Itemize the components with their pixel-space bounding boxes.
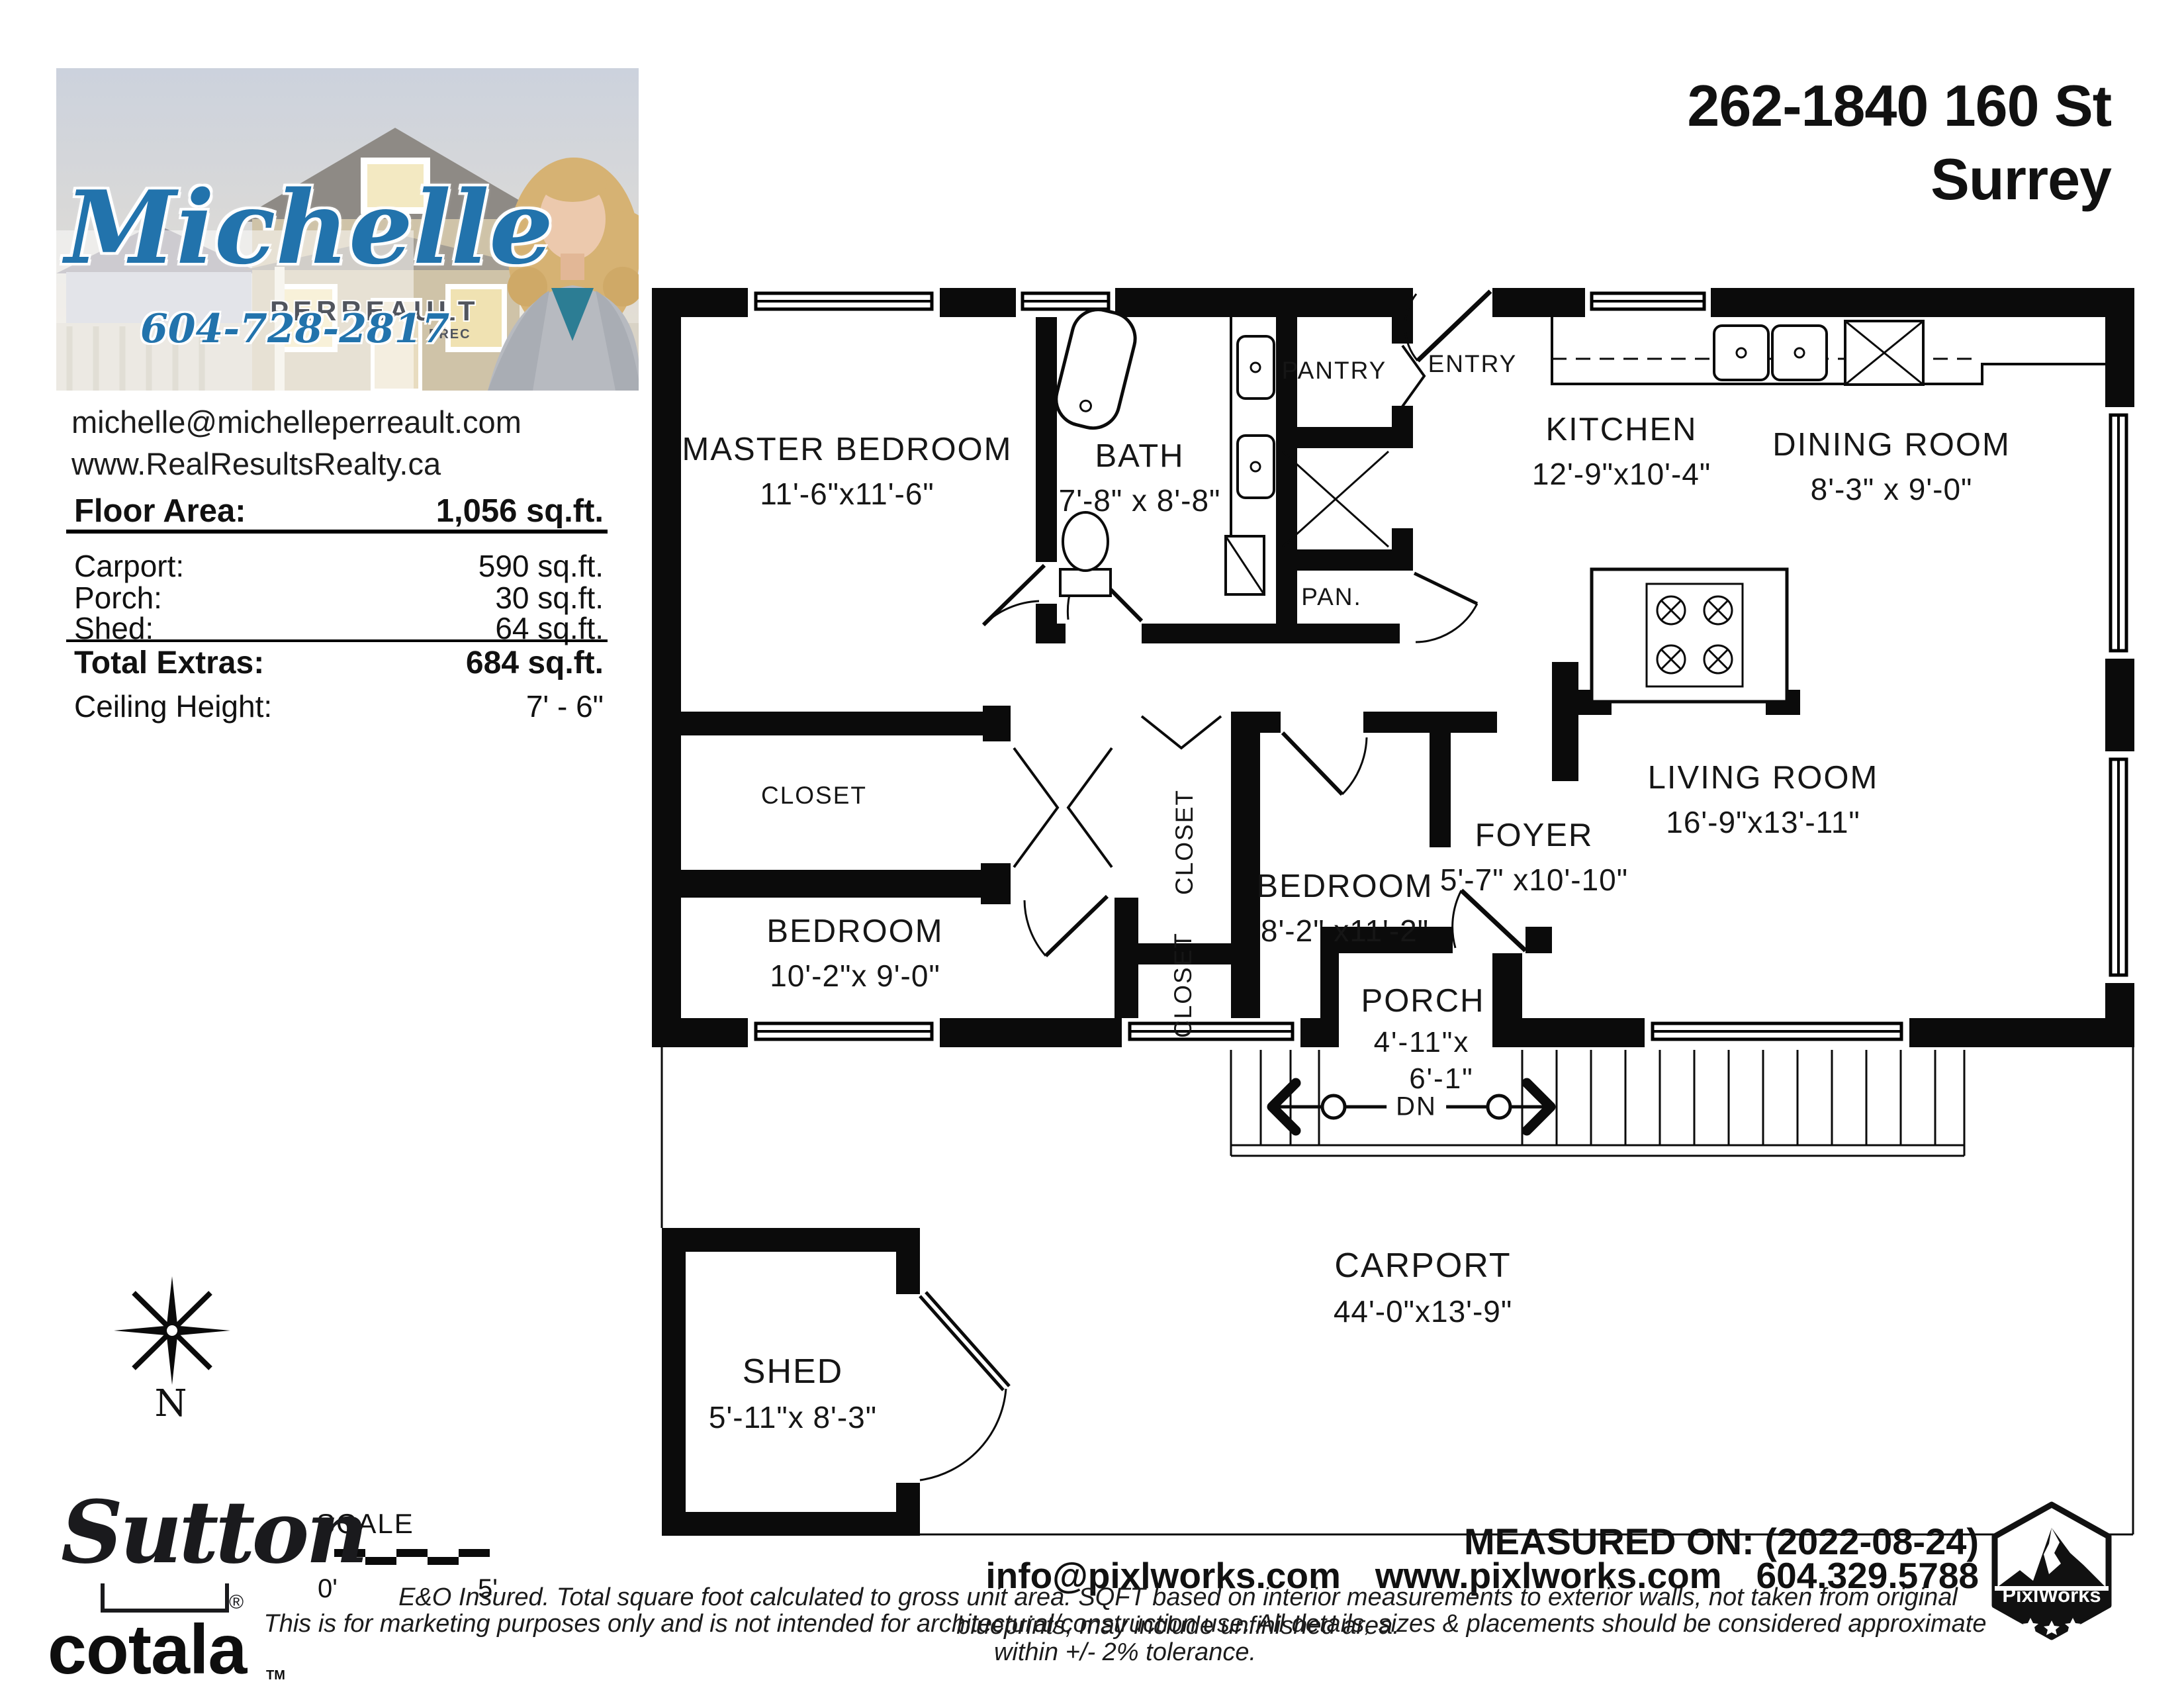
room-label-living-room: LIVING ROOM 16'-9"x13'-11" (1648, 759, 1879, 840)
total-extras-value: 684 sq.ft. (466, 645, 604, 681)
room-label-bedroom2: BEDROOM 8'-2" x11'-2" (1256, 868, 1433, 949)
disclaimer-line2: This is for marketing purposes only and … (251, 1610, 1999, 1667)
room-label-pantry: PANTRY (1282, 357, 1387, 385)
room-label-foyer: FOYER 5'-7" x10'-10" (1440, 817, 1628, 898)
room-label-closet: CLOSET (761, 782, 867, 810)
room-label-pan: PAN. (1301, 583, 1362, 611)
total-extras-label: Total Extras: (74, 645, 264, 681)
compass-north-label: N (155, 1382, 187, 1425)
compass-rose-icon (99, 1274, 245, 1387)
floor-plan: MASTER BEDROOM 11'-6"x11'-6" BATH 7'-8" … (649, 285, 2138, 1575)
ceiling-height-label: Ceiling Height: (74, 688, 272, 724)
ceiling-height-row: Ceiling Height: 7' - 6" (74, 688, 604, 724)
table-divider (66, 639, 608, 642)
sutton-logo: Sutton (61, 1481, 365, 1583)
room-label-carport: CARPORT 44'-0"x13'-9" (1334, 1246, 1512, 1329)
room-label-master-bedroom: MASTER BEDROOM 11'-6"x11'-6" (682, 431, 1013, 512)
address-line1: 262-1840 160 St (1509, 74, 2111, 138)
address-line2: Surrey (1509, 148, 2111, 212)
floor-area-value: 1,056 sq.ft. (436, 493, 604, 530)
sutton-logo-bracket (101, 1583, 229, 1613)
room-label-kitchen: KITCHEN 12'-9"x10'-4" (1532, 411, 1711, 492)
total-extras-row: Total Extras: 684 sq.ft. (74, 645, 604, 681)
room-label-bath: BATH 7'-8" x 8'-8" (1059, 438, 1221, 518)
room-label-closet: CLOSET (1171, 789, 1199, 895)
porch-dims-1: 4'-11"x (1374, 1026, 1470, 1059)
room-label-closet: CLOSET (1169, 932, 1197, 1038)
room-label-entry: ENTRY (1428, 350, 1518, 378)
pixlworks-logo-text: PixlWorks (1991, 1583, 2113, 1607)
agent-first-name: Michelle (65, 177, 553, 278)
cotala-logo: cotala (48, 1610, 246, 1690)
table-row: Carport: 590 sq.ft. (74, 548, 604, 584)
carport-value: 590 sq.ft. (478, 548, 604, 584)
room-label-porch: PORCH (1361, 982, 1485, 1019)
porch-dims-2: 6'-1" (1409, 1062, 1474, 1096)
trademark-mark: TM (266, 1668, 285, 1683)
floor-area-row: Floor Area: 1,056 sq.ft. (74, 493, 604, 530)
room-label-bedroom1: BEDROOM 10'-2"x 9'-0" (766, 913, 943, 994)
agent-website: www.RealResultsRealty.ca (71, 446, 441, 482)
carport-label: Carport: (74, 548, 184, 584)
agent-phone: 604-728-2817 (140, 306, 449, 352)
pixlworks-logo (1985, 1501, 2118, 1640)
agent-email: michelle@michelleperreault.com (71, 404, 522, 440)
table-divider (66, 530, 608, 534)
floor-area-label: Floor Area: (74, 493, 246, 530)
room-label-shed: SHED 5'-11"x 8'-3" (709, 1352, 877, 1435)
room-label-dining-room: DINING ROOM 8'-3" x 9'-0" (1772, 426, 2011, 507)
ceiling-height-value: 7' - 6" (526, 688, 604, 724)
property-address: 262-1840 160 St Surrey (1509, 74, 2111, 212)
stairs-dn-label: DN (1387, 1092, 1446, 1122)
